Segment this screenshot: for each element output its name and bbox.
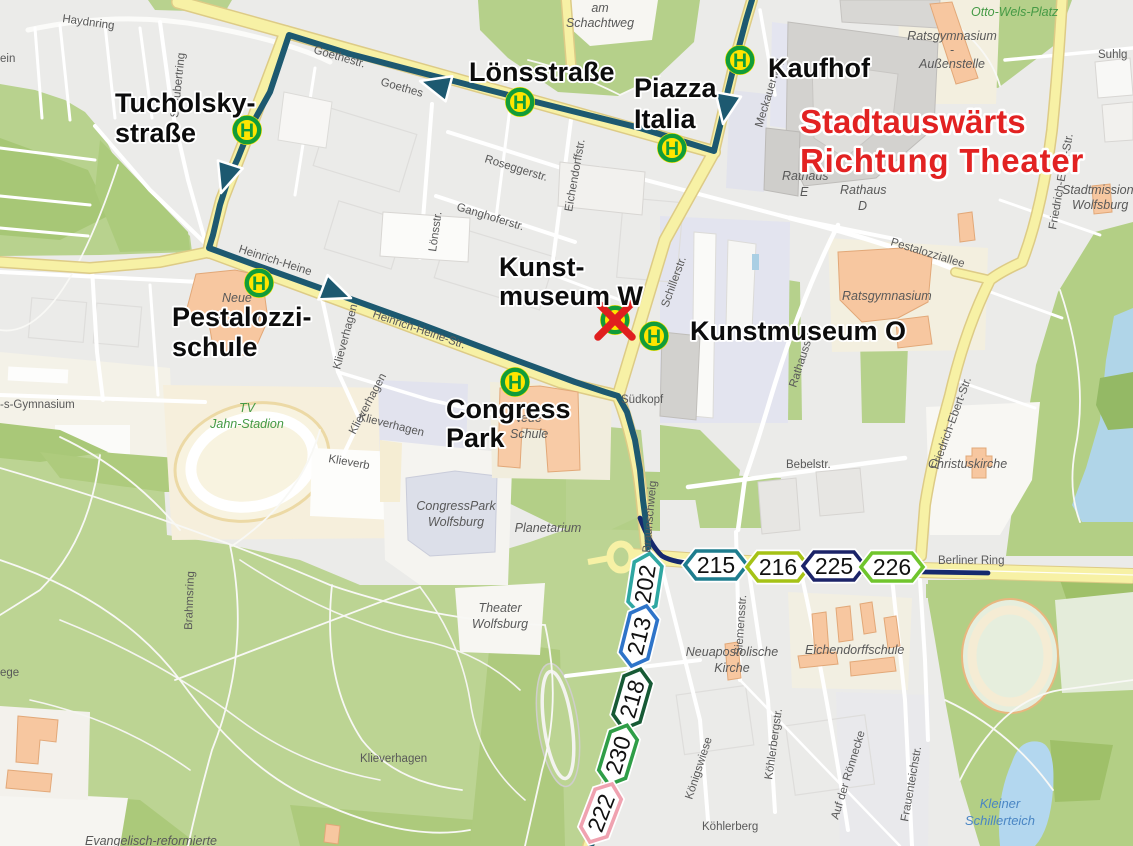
svg-text:ege: ege bbox=[0, 667, 19, 679]
svg-text:Congress: Congress bbox=[446, 394, 571, 424]
svg-text:-s-Gymnasium: -s-Gymnasium bbox=[0, 399, 75, 411]
svg-text:216: 216 bbox=[759, 554, 797, 580]
svg-text:ein: ein bbox=[0, 53, 15, 65]
svg-text:Suhlg: Suhlg bbox=[1098, 49, 1127, 61]
svg-text:Köhlerberg: Köhlerberg bbox=[702, 821, 758, 833]
svg-text:Wolfsburg: Wolfsburg bbox=[1072, 198, 1128, 212]
svg-text:straße: straße bbox=[115, 118, 196, 148]
svg-text:Pestalozzi-: Pestalozzi- bbox=[172, 302, 312, 332]
svg-text:D: D bbox=[858, 199, 867, 213]
svg-text:Kunstmuseum O: Kunstmuseum O bbox=[690, 316, 906, 346]
svg-text:Schule: Schule bbox=[510, 427, 548, 441]
svg-text:Berliner Ring: Berliner Ring bbox=[938, 555, 1004, 567]
svg-text:Rathaus: Rathaus bbox=[840, 183, 887, 197]
svg-text:Kleiner: Kleiner bbox=[980, 796, 1021, 811]
svg-text:Christuskirche: Christuskirche bbox=[928, 457, 1007, 471]
svg-text:Kunst-: Kunst- bbox=[499, 252, 584, 282]
svg-text:Otto-Wels-Platz: Otto-Wels-Platz bbox=[971, 5, 1059, 19]
svg-text:Lönsstraße: Lönsstraße bbox=[469, 57, 615, 87]
svg-text:Bebelstr.: Bebelstr. bbox=[786, 459, 831, 471]
svg-text:Neuapostolische: Neuapostolische bbox=[686, 645, 778, 659]
svg-text:Ratsgymnasium: Ratsgymnasium bbox=[842, 289, 932, 303]
svg-text:Stadtmission: Stadtmission bbox=[1062, 183, 1133, 197]
svg-text:215: 215 bbox=[697, 552, 735, 578]
svg-text:Kirche: Kirche bbox=[714, 661, 749, 675]
svg-text:Stadtauswärts: Stadtauswärts bbox=[800, 103, 1026, 140]
svg-text:Schachtweg: Schachtweg bbox=[566, 16, 634, 30]
svg-text:Richtung Theater: Richtung Theater bbox=[800, 142, 1084, 179]
svg-text:-: - bbox=[950, 43, 954, 57]
svg-text:225: 225 bbox=[815, 553, 853, 579]
svg-text:museum W: museum W bbox=[499, 281, 644, 311]
svg-text:Kaufhof: Kaufhof bbox=[768, 53, 871, 83]
svg-text:Planetarium: Planetarium bbox=[515, 521, 582, 535]
svg-text:Theater: Theater bbox=[478, 601, 522, 615]
svg-text:Eichendorffschule: Eichendorffschule bbox=[805, 643, 904, 657]
svg-text:Schillerteich: Schillerteich bbox=[965, 813, 1035, 828]
svg-text:Jahn-Stadion: Jahn-Stadion bbox=[209, 417, 284, 431]
svg-text:am: am bbox=[591, 1, 608, 15]
svg-text:Italia: Italia bbox=[634, 104, 697, 134]
svg-text:226: 226 bbox=[873, 554, 911, 580]
svg-text:Ratsgymnasium: Ratsgymnasium bbox=[907, 29, 997, 43]
svg-text:TV: TV bbox=[239, 401, 257, 415]
svg-text:E: E bbox=[800, 185, 809, 199]
svg-text:Piazza: Piazza bbox=[634, 73, 718, 103]
svg-text:Außenstelle: Außenstelle bbox=[918, 57, 985, 71]
svg-text:Park: Park bbox=[446, 423, 506, 453]
svg-text:Tucholsky-: Tucholsky- bbox=[115, 88, 256, 118]
svg-text:Klieverhagen: Klieverhagen bbox=[360, 753, 427, 765]
svg-text:schule: schule bbox=[172, 332, 258, 362]
svg-text:Wolfsburg: Wolfsburg bbox=[428, 515, 484, 529]
svg-text:Südkopf: Südkopf bbox=[621, 394, 664, 406]
svg-text:Wolfsburg: Wolfsburg bbox=[472, 617, 528, 631]
svg-text:Brahmsring: Brahmsring bbox=[183, 571, 197, 630]
svg-text:Evangelisch-reformierte: Evangelisch-reformierte bbox=[85, 834, 217, 846]
svg-text:CongressPark: CongressPark bbox=[416, 499, 496, 513]
